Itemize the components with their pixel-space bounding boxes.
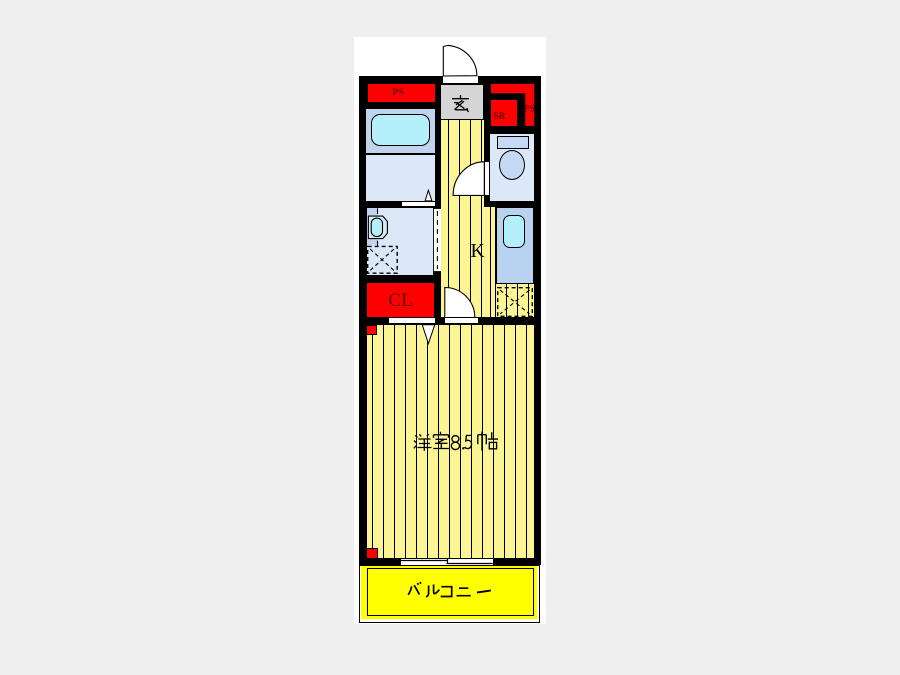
svg-text:PS: PS (524, 105, 535, 115)
